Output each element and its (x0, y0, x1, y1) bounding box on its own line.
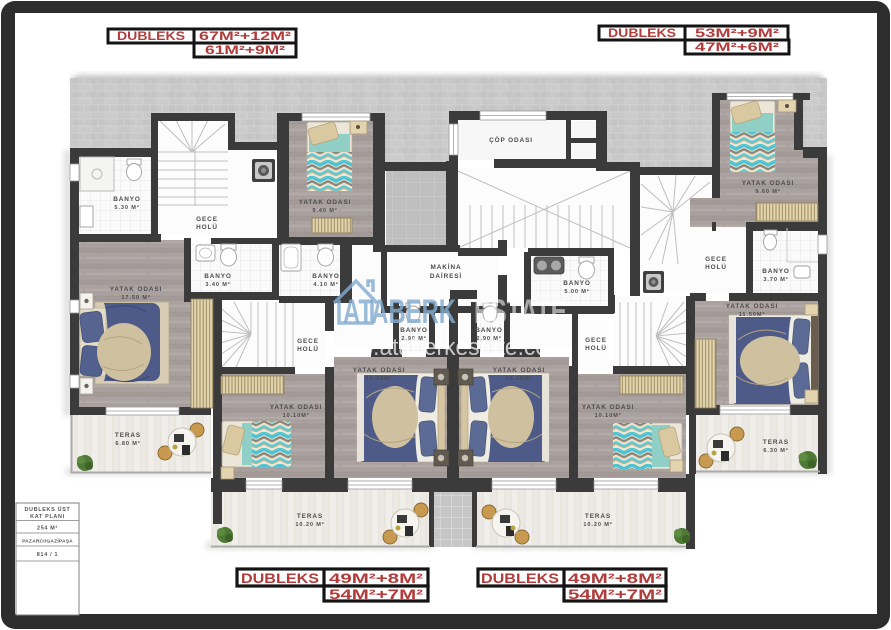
svg-text:49M²+8M²: 49M²+8M² (329, 570, 423, 586)
svg-text:ESTATE: ESTATE (474, 293, 567, 331)
svg-text:DUBLEKS: DUBLEKS (608, 26, 676, 40)
svg-text:3.40 M²: 3.40 M² (205, 281, 230, 288)
svg-text:YATAK ODASI: YATAK ODASI (299, 199, 351, 206)
svg-text:61M²+9M²: 61M²+9M² (205, 43, 285, 57)
svg-text:YATAK ODASI: YATAK ODASI (270, 404, 322, 411)
svg-text:DUBLEKS: DUBLEKS (481, 570, 559, 586)
svg-text:KAT PLANI: KAT PLANI (30, 514, 65, 520)
svg-text:BANYO: BANYO (762, 268, 790, 275)
svg-text:DUBLEKS: DUBLEKS (241, 570, 319, 586)
svg-text:17.50 M²: 17.50 M² (121, 294, 150, 301)
svg-text:YATAK ODASI: YATAK ODASI (726, 303, 778, 310)
svg-text:14.20M²: 14.20M² (506, 375, 533, 382)
svg-text:14.20M²: 14.20M² (366, 375, 393, 382)
svg-text:10.10M²: 10.10M² (283, 412, 310, 419)
svg-text:11.50M²: 11.50M² (739, 311, 766, 318)
svg-text:BANYO: BANYO (204, 273, 232, 280)
svg-text:DAİRESİ: DAİRESİ (430, 271, 462, 280)
svg-text:54M²+7M²: 54M²+7M² (329, 586, 423, 602)
svg-text:47M²+6M²: 47M²+6M² (695, 40, 779, 54)
svg-text:YATAK ODASI: YATAK ODASI (493, 367, 545, 374)
svg-text:GECE: GECE (297, 338, 319, 345)
svg-text:10.20 M²: 10.20 M² (583, 521, 612, 528)
svg-text:TERAS: TERAS (585, 513, 611, 520)
svg-text:www.ataberkestate.com: www.ataberkestate.com (324, 334, 567, 361)
svg-text:ÇÖP ODASI: ÇÖP ODASI (489, 135, 533, 144)
svg-text:3.70 M²: 3.70 M² (763, 276, 788, 283)
svg-text:DUBLEKS: DUBLEKS (117, 29, 185, 43)
svg-text:10.20 M²: 10.20 M² (295, 521, 324, 528)
svg-text:BANYO: BANYO (563, 280, 591, 287)
svg-text:GECE: GECE (705, 256, 727, 263)
svg-text:TERAS: TERAS (115, 432, 141, 439)
svg-text:9.40 M²: 9.40 M² (312, 207, 337, 214)
svg-text:HOLÜ: HOLÜ (297, 344, 319, 353)
svg-text:6.30 M²: 6.30 M² (763, 447, 788, 454)
svg-text:YATAK ODASI: YATAK ODASI (742, 180, 794, 187)
svg-text:6.80 M²: 6.80 M² (115, 440, 140, 447)
svg-text:9.60 M²: 9.60 M² (755, 188, 780, 195)
svg-text:TERAS: TERAS (763, 439, 789, 446)
svg-text:49M²+8M²: 49M²+8M² (568, 570, 662, 586)
svg-text:HOLÜ: HOLÜ (585, 343, 607, 352)
svg-text:GECE: GECE (196, 216, 218, 223)
svg-text:54M²+7M²: 54M²+7M² (568, 586, 662, 602)
svg-text:TERAS: TERAS (297, 513, 323, 520)
svg-text:HOLÜ: HOLÜ (705, 262, 727, 271)
svg-text:YATAK ODASI: YATAK ODASI (582, 404, 634, 411)
svg-text:YATAK ODASI: YATAK ODASI (353, 367, 405, 374)
svg-text:MAKİNA: MAKİNA (431, 262, 462, 271)
svg-text:254 M²: 254 M² (37, 526, 58, 532)
svg-text:DUBLEKS ÜST: DUBLEKS ÜST (24, 506, 70, 513)
svg-text:4.10 M²: 4.10 M² (313, 281, 338, 288)
svg-text:BANYO: BANYO (113, 196, 141, 203)
svg-text:GECE: GECE (585, 337, 607, 344)
svg-text:HOLÜ: HOLÜ (196, 222, 218, 231)
svg-text:PAZARCI/GAZİPAŞA: PAZARCI/GAZİPAŞA (22, 538, 73, 545)
svg-text:814 / 1: 814 / 1 (37, 552, 58, 558)
svg-text:53M²+9M²: 53M²+9M² (695, 26, 779, 40)
svg-text:5.30 M²: 5.30 M² (114, 204, 139, 211)
svg-text:YATAK ODASI: YATAK ODASI (110, 286, 162, 293)
svg-text:5.00 M²: 5.00 M² (564, 288, 589, 295)
svg-text:10.10M²: 10.10M² (595, 412, 622, 419)
svg-text:67M²+12M²: 67M²+12M² (199, 29, 291, 43)
svg-text:BANYO: BANYO (312, 273, 340, 280)
svg-text:ATABERK: ATABERK (343, 293, 456, 331)
